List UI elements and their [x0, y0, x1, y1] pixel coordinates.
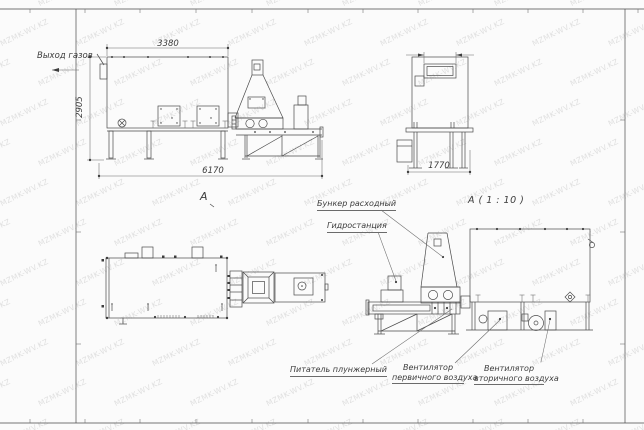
detail-view-linework	[366, 210, 595, 364]
hydrostation-label: Гидростанция	[327, 221, 387, 233]
secondary-fan-label-line2: вторичного воздуха	[474, 374, 544, 384]
side-view-linework	[397, 52, 474, 175]
front-view-linework	[52, 44, 323, 207]
detail-a-label: А ( 1 : 10 )	[468, 195, 524, 206]
secondary-fan-label: Вентилятор вторичного воздуха	[474, 364, 544, 385]
dim-1770: 1770	[419, 161, 459, 171]
plunger-feeder-label: Питатель плунжерный	[290, 365, 387, 377]
dim-2905: 2905	[75, 82, 85, 132]
dim-3380: 3380	[148, 39, 188, 49]
drawing-sheet: MZMK-WV.KZMZMK-WV.KZMZMK-WV.KZMZMK-WV.KZ…	[0, 0, 644, 430]
dim-6170: 6170	[193, 166, 233, 176]
feed-hopper-label: Бункер расходный	[317, 199, 396, 211]
primary-fan-label: Вентилятор первичного воздуха	[392, 363, 464, 384]
secondary-fan-label-line1: Вентилятор	[474, 364, 544, 374]
plan-view-linework	[102, 247, 329, 324]
sheet-frame	[0, 9, 644, 423]
gas-outlet-label: Выход газов	[37, 51, 93, 61]
primary-fan-label-line2: первичного воздуха	[392, 373, 464, 383]
view-a-label: A	[200, 190, 208, 203]
primary-fan-label-line1: Вентилятор	[392, 363, 464, 373]
